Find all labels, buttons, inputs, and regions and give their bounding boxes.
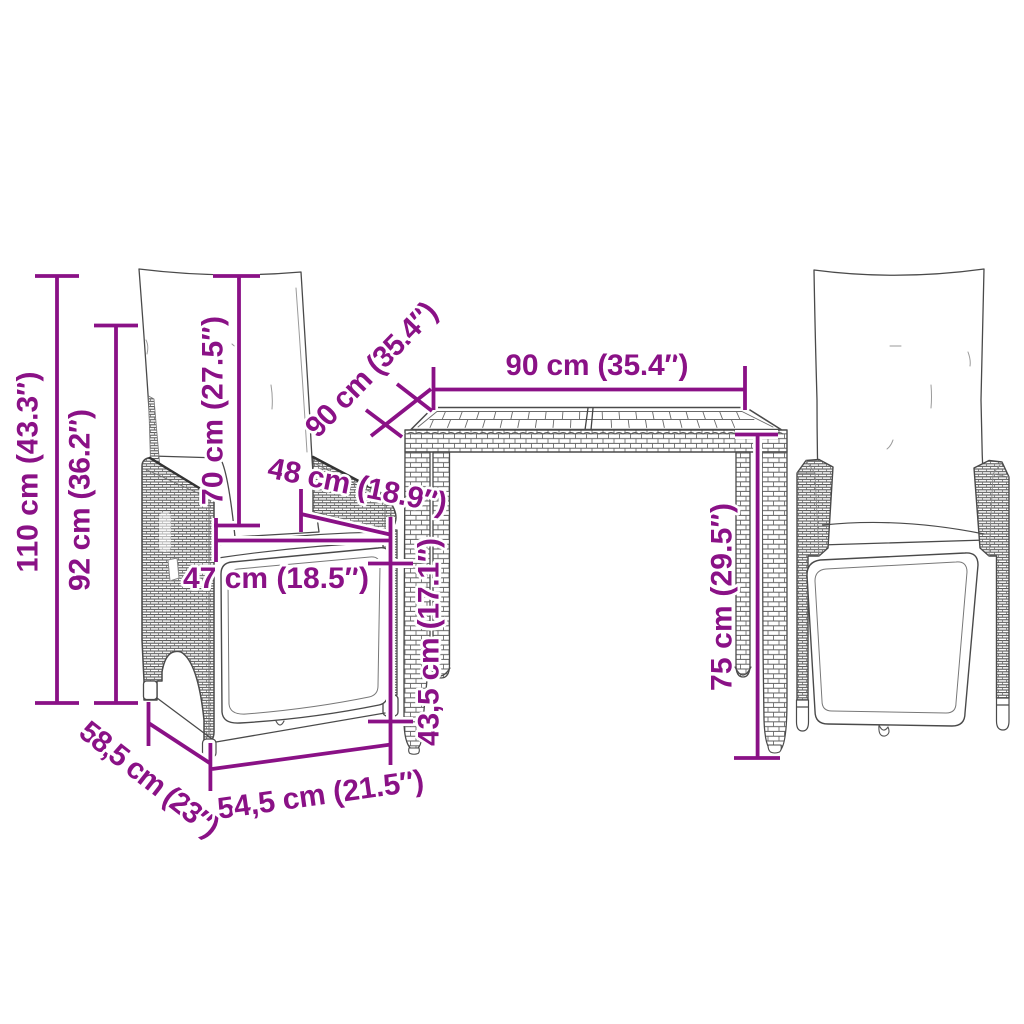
svg-text:75 cm (29.5″): 75 cm (29.5″) — [706, 503, 739, 691]
svg-text:90 cm (35.4″): 90 cm (35.4″) — [506, 349, 689, 382]
svg-text:70 cm (27.5″): 70 cm (27.5″) — [197, 316, 230, 505]
svg-text:92 cm (36.2″): 92 cm (36.2″) — [64, 409, 97, 591]
svg-text:110 cm (43.3″): 110 cm (43.3″) — [12, 372, 45, 573]
svg-text:43,5 cm (17.1″): 43,5 cm (17.1″) — [413, 538, 446, 746]
svg-text:47 cm (18.5″): 47 cm (18.5″) — [183, 562, 369, 595]
